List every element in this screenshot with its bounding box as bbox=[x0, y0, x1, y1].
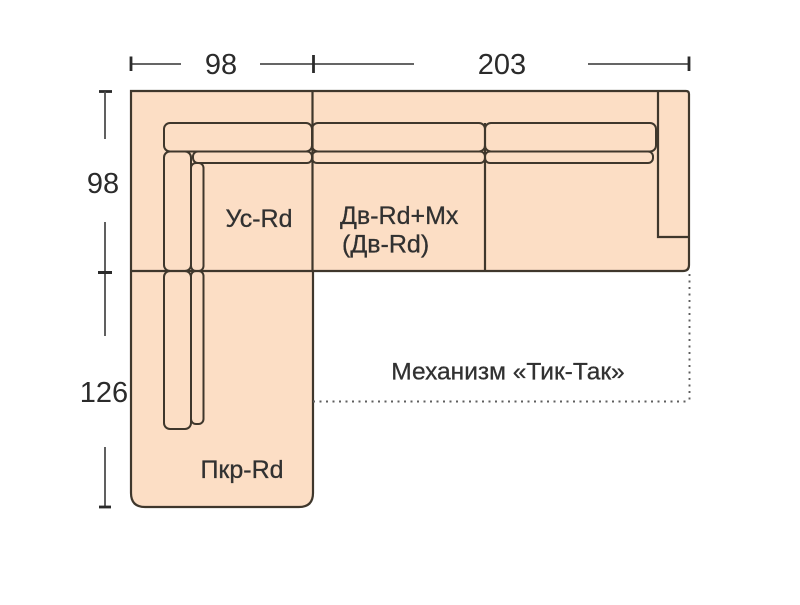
svg-text:Механизм «Тик-Так»: Механизм «Тик-Так» bbox=[391, 359, 624, 386]
svg-text:Ус-Rd: Ус-Rd bbox=[226, 205, 293, 233]
svg-text:Дв-Rd+Мх: Дв-Rd+Мх bbox=[340, 202, 459, 230]
svg-text:98: 98 bbox=[205, 49, 237, 81]
svg-text:126: 126 bbox=[80, 377, 128, 409]
svg-text:Пкр-Rd: Пкр-Rd bbox=[200, 456, 283, 484]
svg-text:203: 203 bbox=[478, 49, 526, 81]
svg-text:98: 98 bbox=[87, 168, 119, 200]
svg-text:(Дв-Rd): (Дв-Rd) bbox=[342, 231, 429, 259]
